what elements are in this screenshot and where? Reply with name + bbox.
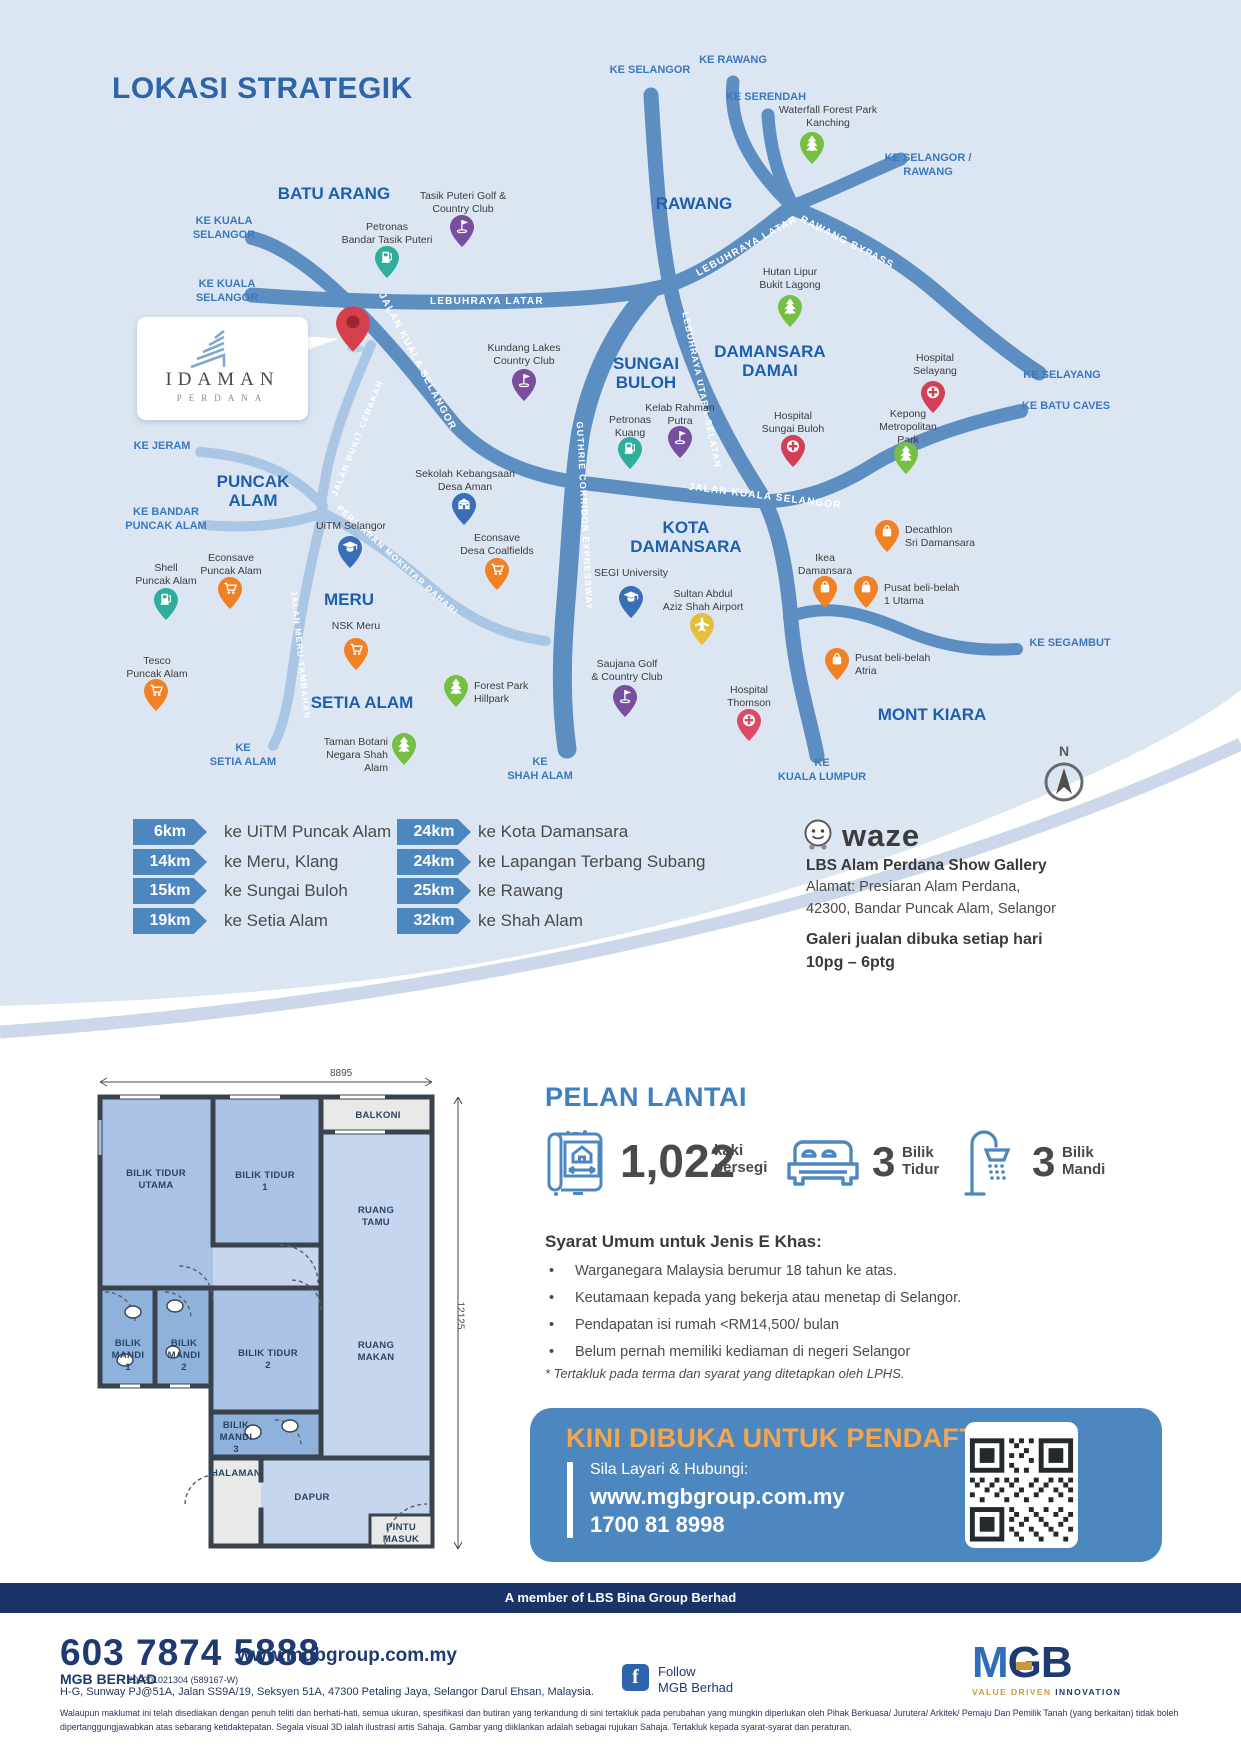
follow-label: Follow — [658, 1664, 696, 1679]
distance-destination: ke UiTM Puncak Alam — [224, 819, 391, 845]
poi-label: Petronas Bandar Tasik Puteri — [332, 221, 442, 247]
direction-label: KE RAWANG — [683, 54, 783, 68]
bullet-dot: • — [549, 1344, 554, 1360]
poi-label: Saujana Golf & Country Club — [577, 658, 677, 684]
qr-code — [965, 1422, 1078, 1548]
distance-badge: 15km — [133, 878, 207, 904]
registration-phone: 1700 81 8998 — [590, 1512, 725, 1538]
mgb-tagline: VALUE DRIVEN INNOVATION — [972, 1687, 1121, 1697]
fuel-pin-icon — [374, 245, 400, 279]
direction-label: KE SELANGOR / RAWANG — [868, 152, 988, 180]
room-label: RUANG TAMU — [335, 1205, 417, 1229]
room-label: RUANG MAKAN — [335, 1340, 417, 1364]
poi-label: Taman Botani Negara Shah Alam — [300, 736, 388, 774]
bullet-dot: • — [549, 1263, 554, 1279]
gallery-address-line1: Alamat: Presiaran Alam Perdana, — [806, 879, 1020, 895]
park-pin-icon — [391, 732, 417, 766]
term-item: Pendapatan isi rumah <RM14,500/ bulan — [575, 1317, 839, 1333]
poi-label: Hospital Selayang — [900, 352, 970, 378]
hospital-pin-icon — [920, 380, 946, 414]
floorplan-drawing — [85, 1060, 475, 1565]
mall-pin-icon — [853, 575, 879, 609]
facebook-icon[interactable]: f — [622, 1664, 649, 1691]
room-label: BILIK MANDI 3 — [212, 1420, 260, 1456]
floorplan-heading: PELAN LANTAI — [545, 1082, 747, 1113]
follow-account: MGB Berhad — [658, 1680, 733, 1695]
distance-destination: ke Rawang — [478, 878, 563, 904]
area-label: SUNGAI BULOH — [586, 354, 706, 392]
distance-badge: 6km — [133, 819, 207, 845]
direction-label: KE BANDAR PUNCAK ALAM — [106, 506, 226, 534]
area-label: BATU ARANG — [274, 184, 394, 203]
park-pin-icon — [443, 674, 469, 708]
flyer-page: LOKASI STRATEGIK LEBUHRAYA LATAR LEBUHRA… — [0, 0, 1241, 1754]
qr-pattern — [965, 1422, 1078, 1548]
development-location-pin-icon — [334, 305, 372, 353]
school-pin-icon — [451, 492, 477, 526]
distance-badge: 32km — [397, 908, 471, 934]
golf-pin-icon — [612, 684, 638, 718]
poi-label: NSK Meru — [321, 620, 391, 633]
poi-label: Econsave Desa Coalfields — [447, 532, 547, 558]
road-label: LEBUHRAYA LATAR — [430, 296, 544, 307]
poi-label: Sultan Abdul Aziz Shah Airport — [648, 588, 758, 614]
distance-badge: 25km — [397, 878, 471, 904]
poi-label: Kelab Rahman Putra — [635, 402, 725, 428]
hospital-pin-icon — [736, 708, 762, 742]
room-label: BALKONI — [337, 1110, 419, 1122]
direction-label: KE SHAH ALAM — [495, 756, 585, 784]
footer-website-link[interactable]: www.mgbgroup.com.my — [237, 1645, 457, 1667]
poi-label: Hutan Lipur Bukit Lagong — [745, 266, 835, 292]
term-item: Keutamaan kepada yang bekerja atau menet… — [575, 1290, 961, 1306]
bathroom-count: 3 — [1032, 1138, 1055, 1186]
waze-wordmark: waze — [842, 818, 920, 854]
supermarket-pin-icon — [143, 678, 169, 712]
terms-title: Syarat Umum untuk Jenis E Khas: — [545, 1232, 822, 1252]
blueprint-icon — [543, 1124, 611, 1204]
floor-area-unit: kaki persegi — [714, 1142, 767, 1177]
mall-pin-icon — [874, 519, 900, 553]
terms-note: * Tertakluk pada terma dan syarat yang d… — [545, 1366, 904, 1381]
direction-label: KE SELAYANG — [1007, 369, 1117, 383]
tagline-gold: VALUE DRIVEN — [972, 1687, 1051, 1697]
distance-destination: ke Kota Damansara — [478, 819, 628, 845]
room-label: DAPUR — [276, 1492, 348, 1504]
room-label: PINTU MASUK — [370, 1522, 432, 1546]
idaman-logo-icon — [189, 325, 259, 369]
mgb-logo-letter-m: M — [972, 1638, 1008, 1687]
company-registration-number: 200201021304 (589167-W) — [128, 1675, 238, 1685]
term-item: Belum pernah memiliki kediaman di negeri… — [575, 1344, 910, 1360]
area-label: RAWANG — [634, 194, 754, 213]
room-label: BILIK TIDUR 1 — [229, 1170, 301, 1194]
bed-icon — [783, 1134, 863, 1196]
room-label: BILIK MANDI 2 — [160, 1338, 208, 1374]
area-label: KOTA DAMANSARA — [596, 518, 776, 556]
area-label: DAMANSARA DAMAI — [690, 342, 850, 380]
bedroom-count: 3 — [872, 1138, 895, 1186]
poi-label: Pusat beli-belah 1 Utama — [884, 582, 994, 608]
mgb-logo-letter-b: B — [1041, 1638, 1072, 1687]
waze-icon — [800, 817, 836, 853]
poi-label: Kundang Lakes Country Club — [469, 342, 579, 368]
bathroom-unit: Bilik Mandi — [1062, 1144, 1105, 1179]
poi-label: UiTM Selangor — [301, 520, 401, 533]
mall-pin-icon — [824, 647, 850, 681]
registration-cta: Sila Layari & Hubungi: — [590, 1461, 748, 1479]
bullet-dot: • — [549, 1317, 554, 1333]
logo-subtitle: PERDANA — [137, 393, 308, 403]
gallery-address-line2: 42300, Bandar Puncak Alam, Selangor — [806, 901, 1056, 917]
gallery-hours-line1: Galeri jualan dibuka setiap hari — [806, 931, 1043, 949]
floorplan-width-dimension: 8895 — [330, 1068, 352, 1079]
room-label: BILIK TIDUR UTAMA — [115, 1168, 197, 1192]
distance-destination: ke Lapangan Terbang Subang — [478, 849, 706, 875]
logo-title: IDAMAN — [137, 369, 308, 391]
supermarket-pin-icon — [484, 557, 510, 591]
distance-destination: ke Meru, Klang — [224, 849, 338, 875]
distance-badge: 14km — [133, 849, 207, 875]
park-pin-icon — [777, 294, 803, 328]
supermarket-pin-icon — [217, 576, 243, 610]
bullet-dot: • — [549, 1290, 554, 1306]
poi-label: Pusat beli-belah Atria — [855, 652, 965, 678]
mall-pin-icon — [812, 575, 838, 609]
distance-badge: 24km — [397, 849, 471, 875]
floorplan-height-dimension: 12125 — [454, 1302, 465, 1330]
golf-pin-icon — [667, 425, 693, 459]
poi-label: Forest Park Hillpark — [474, 680, 544, 706]
company-address: H-G, Sunway PJ@51A, Jalan SS9A/19, Seksy… — [60, 1686, 594, 1698]
park-pin-icon — [799, 131, 825, 165]
poi-label: Waterfall Forest Park Kanching — [768, 104, 888, 130]
poi-label: SEGI University — [576, 567, 686, 580]
distance-destination: ke Setia Alam — [224, 908, 328, 934]
poi-label: Tasik Puteri Golf & Country Club — [408, 190, 518, 216]
hospital-pin-icon — [780, 434, 806, 468]
bedroom-unit: Bilik Tidur — [902, 1144, 939, 1179]
poi-label: Hospital Sungai Buloh — [748, 410, 838, 436]
park-pin-icon — [893, 441, 919, 475]
direction-label: KE BATU CAVES — [1006, 400, 1126, 414]
poi-label: Tesco Puncak Alam — [117, 655, 197, 681]
distance-badge: 19km — [133, 908, 207, 934]
shower-icon — [958, 1124, 1024, 1204]
area-label: SETIA ALAM — [302, 693, 422, 712]
direction-label: KE KUALA SELANGOR — [177, 278, 277, 306]
mgb-logo: MGB — [972, 1638, 1072, 1688]
gallery-hours-line2: 10pg – 6ptg — [806, 954, 895, 972]
direction-label: KE KUALA LUMPUR — [767, 757, 877, 785]
mgb-logo-gold-bar — [1016, 1662, 1032, 1670]
distance-destination: ke Sungai Buloh — [224, 878, 348, 904]
area-label: PUNCAK ALAM — [193, 472, 313, 510]
registration-website-link[interactable]: www.mgbgroup.com.my — [590, 1484, 845, 1510]
poi-label: Sekolah Kebangsaan Desa Aman — [400, 468, 530, 494]
poi-label: Hospital Thomson — [714, 684, 784, 710]
poi-label: Econsave Puncak Alam — [186, 552, 276, 578]
direction-label: KE SERENDAH — [716, 91, 816, 105]
university-pin-icon — [337, 535, 363, 569]
golf-pin-icon — [511, 368, 537, 402]
fuel-pin-icon — [617, 436, 643, 470]
area-label: MONT KIARA — [872, 705, 992, 724]
room-label: BILIK MANDI 1 — [104, 1338, 152, 1374]
distance-badge: 24km — [397, 819, 471, 845]
page-title: LOKASI STRATEGIK — [112, 72, 413, 106]
term-item: Warganegara Malaysia berumur 18 tahun ke… — [575, 1263, 897, 1279]
direction-label: KE SEGAMBUT — [1015, 637, 1125, 651]
area-label: MERU — [289, 590, 409, 609]
gallery-name: LBS Alam Perdana Show Gallery — [806, 857, 1047, 875]
divider — [567, 1462, 573, 1538]
svg-text:N: N — [1059, 743, 1069, 759]
poi-label: Ikea Damansara — [780, 552, 870, 578]
direction-label: KE KUALA SELANGOR — [174, 215, 274, 243]
legal-disclaimer: Walaupun maklumat ini telah disediakan d… — [60, 1706, 1185, 1734]
direction-label: KE SETIA ALAM — [198, 742, 288, 770]
idaman-perdana-logo-card: IDAMAN PERDANA — [137, 317, 308, 420]
member-bar: A member of LBS Bina Group Berhad — [0, 1583, 1241, 1613]
tagline-navy: INNOVATION — [1055, 1687, 1121, 1697]
fuel-pin-icon — [153, 587, 179, 621]
room-label: BILIK TIDUR 2 — [227, 1348, 309, 1372]
compass-icon: N — [1038, 742, 1090, 810]
airport-pin-icon — [689, 612, 715, 646]
supermarket-pin-icon — [343, 637, 369, 671]
distance-destination: ke Shah Alam — [478, 908, 583, 934]
university-pin-icon — [618, 585, 644, 619]
golf-pin-icon — [449, 214, 475, 248]
poi-label: Decathlon Sri Damansara — [905, 524, 1005, 550]
room-label: HALAMAN — [200, 1468, 272, 1480]
direction-label: KE JERAM — [122, 440, 202, 454]
